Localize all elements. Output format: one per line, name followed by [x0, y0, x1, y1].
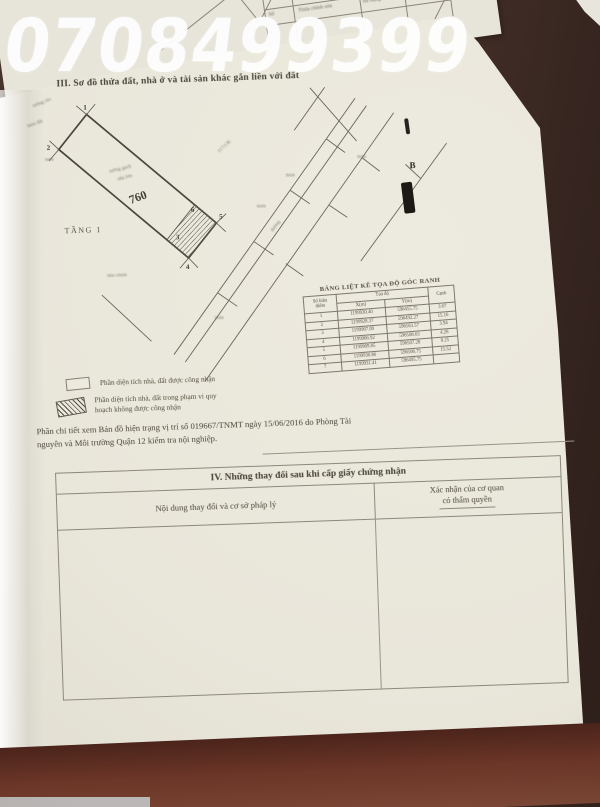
road-name-label: đường [270, 219, 282, 233]
legend-box-hatched [56, 397, 87, 418]
parcel-number: 760 [127, 187, 149, 206]
coordinate-table: BẢNG LIỆT KÊ TỌA ĐỘ GÓC RANH Số hiệuđiểm… [302, 275, 464, 374]
col2-line2: có thẩm quyền [439, 494, 495, 509]
svg-text:thửa: thửa [357, 155, 367, 160]
svg-text:tường gạch: tường gạch [109, 164, 132, 174]
phone-watermark: 0708499399 [0, 4, 514, 89]
boundary-point-numbers: 1 2 3 4 5 6 [45, 99, 225, 276]
black-mark-large [401, 182, 416, 214]
parcel-outline [47, 100, 228, 273]
svg-text:nhà lớn: nhà lớn [117, 174, 133, 183]
map-note: Phần chi tiết xem Bản đồ hiện trạng vị t… [36, 407, 567, 452]
svg-text:tường rào: tường rào [32, 97, 52, 109]
section-iv-col2-header: Xác nhận của cơ quan có thẩm quyền [374, 476, 561, 518]
document-content: III. Sơ đồ thửa đất, nhà ở và tài sản kh… [0, 0, 600, 807]
section-iv-body-divider [375, 519, 382, 689]
photo-of-land-certificate: BẢNG CHỈ DẪN Số Thửa DIỆN TÍCH Sử dụng C… [0, 0, 600, 807]
svg-text:hẻm: hẻm [45, 158, 54, 163]
svg-text:thửa: thửa [286, 173, 296, 178]
point-4: 4 [186, 263, 190, 271]
divider-line [262, 441, 574, 455]
direction-b-label: B [409, 160, 415, 170]
coordinate-table-grid: Số hiệuđiểm Tọa độ Cạnh X(m) Y(m) 111999… [303, 285, 461, 374]
svg-text:117/136: 117/136 [217, 139, 233, 154]
svg-text:nhà chính: nhà chính [107, 273, 127, 279]
legend-label-planning-line2: hoạch không được công nhận [95, 402, 181, 414]
section-iv-table: IV. Những thay đổi sau khi cấp giấy chứn… [55, 455, 569, 701]
legend-box-recognized [65, 377, 90, 391]
direction-marker: B [399, 118, 418, 214]
svg-text:thửa: thửa [257, 204, 267, 209]
black-mark-small [404, 118, 410, 134]
point-5: 5 [219, 213, 223, 221]
svg-text:hẻm đất: hẻm đất [27, 119, 44, 129]
point-1: 1 [83, 103, 87, 111]
floor-label: TẦNG 1 [64, 224, 102, 235]
svg-text:thửa: thửa [215, 316, 225, 321]
point-2: 2 [47, 144, 51, 152]
